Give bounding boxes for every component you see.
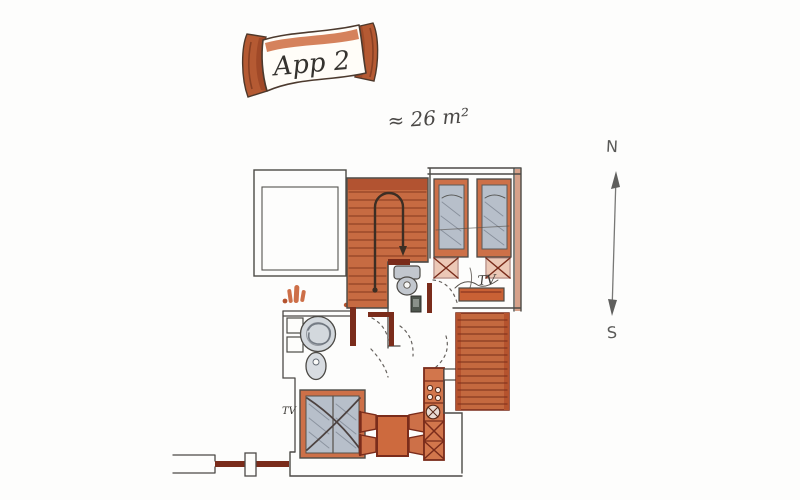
balcony-deck — [456, 313, 509, 410]
nightstand-1 — [434, 258, 458, 278]
corridor-walls — [173, 455, 215, 473]
area-note: ≈ 26 m² — [387, 103, 470, 133]
wall-stub — [427, 283, 432, 313]
hall-top-wall — [283, 311, 352, 316]
door-swing-arc — [431, 336, 447, 371]
kitchen-sink — [426, 405, 440, 419]
chair — [360, 435, 376, 455]
door-swing-arc — [400, 326, 413, 356]
scanned-floor-plan-page: App 2 ≈ 26 m² N S — [0, 0, 800, 500]
wall-stub — [389, 312, 394, 346]
entry-corridor — [173, 453, 289, 476]
chair — [360, 412, 376, 432]
bedroom-door-swing-arc — [433, 280, 458, 306]
left-open-room — [254, 170, 346, 276]
corridor-wall-fill — [256, 461, 289, 467]
bed-single-1 — [434, 179, 468, 257]
chair — [409, 435, 425, 455]
stair-top-band — [348, 179, 427, 190]
wc-door-swing-arc — [371, 349, 388, 377]
apartment-plan: TV — [173, 168, 521, 476]
bedroom-right-wall-fill — [515, 169, 521, 311]
compass: N S — [606, 137, 620, 343]
entry-door — [245, 453, 256, 476]
door-swing-arc — [372, 318, 389, 344]
wall-stub — [388, 259, 410, 265]
wc-sink — [411, 296, 421, 312]
shower — [301, 317, 336, 352]
dining-set — [360, 412, 425, 456]
toilet — [394, 266, 420, 295]
bedroom-tv-label: TV — [477, 273, 498, 289]
title-ribbon: App 2 — [243, 23, 378, 97]
dining-table — [377, 416, 408, 456]
bedroom: TV — [427, 168, 521, 313]
chair — [409, 412, 425, 432]
floor-plan-sketch: App 2 ≈ 26 m² N S — [0, 0, 800, 500]
compass-north-label: N — [606, 137, 619, 157]
bed-single-2 — [477, 179, 511, 257]
wall-stub — [350, 307, 356, 346]
vanity-cabinet — [287, 337, 303, 352]
corridor-wall-fill — [215, 461, 246, 467]
compass-arrow-icon — [608, 171, 620, 316]
tv-stand — [459, 288, 504, 301]
double-bed — [300, 390, 365, 458]
wall-stub — [368, 312, 389, 317]
compass-south-label: S — [606, 323, 617, 343]
bathroom-toilet — [306, 353, 326, 380]
living-tv-label: TV — [282, 406, 298, 417]
